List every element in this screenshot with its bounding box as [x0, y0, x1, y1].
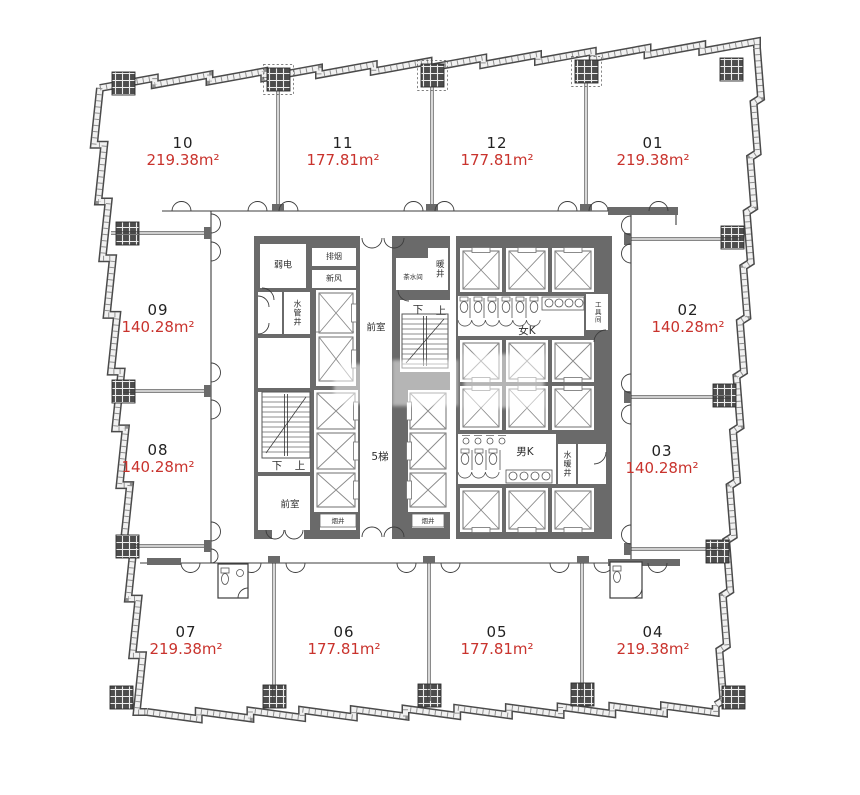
label-water-pipe-shaft: 水管井 — [293, 300, 301, 327]
column — [267, 68, 290, 91]
toilet-icon — [516, 302, 524, 313]
label-womens-wc: 女K — [518, 326, 535, 337]
sink-icon — [509, 472, 517, 480]
unit-area: 219.38m² — [146, 152, 219, 169]
sink-icon — [237, 570, 244, 577]
unit-area: 177.81m² — [460, 152, 533, 169]
column — [571, 683, 594, 706]
sink-icon — [545, 299, 553, 307]
unit-number: 09 — [121, 302, 194, 319]
toilet-icon — [502, 302, 510, 313]
unit-area: 219.38m² — [616, 641, 689, 658]
sink-icon — [575, 299, 583, 307]
unit-area: 177.81m² — [306, 152, 379, 169]
sink-icon — [542, 472, 550, 480]
toilet-icon — [488, 302, 496, 313]
unit-number: 12 — [460, 135, 533, 152]
column — [110, 686, 133, 709]
column — [112, 72, 135, 95]
floor-plan: 10 219.38m² 11 177.81m² 12 177.81m² 01 2… — [0, 0, 860, 795]
toilet-icon — [461, 454, 469, 465]
sink-icon — [565, 299, 573, 307]
unit-label-10[interactable]: 10 219.38m² — [146, 135, 219, 168]
column — [418, 684, 441, 707]
floor-plan-drawing — [0, 0, 860, 795]
label-tool-room: 工具间 — [594, 301, 601, 324]
unit-label-02[interactable]: 02 140.28m² — [651, 302, 724, 335]
toilet-icon — [475, 454, 483, 465]
label-anteroom-lower: 前室 — [280, 500, 299, 510]
label-heating-shaft: 暖井 — [435, 260, 444, 279]
unit-number: 08 — [121, 442, 194, 459]
label-up-lower: 上 — [295, 461, 306, 472]
unit-label-07[interactable]: 07 219.38m² — [149, 624, 222, 657]
unit-area: 140.28m² — [121, 319, 194, 336]
label-down-upper: 下 — [413, 305, 424, 316]
toilet-icon — [221, 568, 229, 573]
unit-number: 11 — [306, 135, 379, 152]
unit-number: 04 — [616, 624, 689, 641]
column — [421, 64, 444, 87]
unit-area: 140.28m² — [625, 460, 698, 477]
column — [706, 540, 729, 563]
column — [116, 535, 139, 558]
label-mens-wc: 男K — [516, 447, 533, 458]
unit-area: 177.81m² — [307, 641, 380, 658]
toilet-icon — [489, 454, 497, 465]
unit-number: 03 — [625, 443, 698, 460]
unit-number: 02 — [651, 302, 724, 319]
label-tea-room: 茶水间 — [403, 274, 423, 281]
label-weak-current: 弱电 — [274, 262, 292, 271]
unit-label-11[interactable]: 11 177.81m² — [306, 135, 379, 168]
sink-icon — [531, 472, 539, 480]
label-fresh-air: 新风 — [326, 275, 342, 283]
column — [263, 685, 286, 708]
sink-icon — [520, 472, 528, 480]
label-water-heating-shaft: 水暖井 — [563, 451, 571, 478]
label-up-upper: 上 — [436, 306, 447, 317]
label-anteroom-upper: 前室 — [366, 323, 385, 333]
unit-area: 140.28m² — [121, 459, 194, 476]
column — [575, 60, 598, 83]
toilet-icon — [613, 566, 621, 571]
urinal-icon — [463, 438, 469, 444]
toilet-icon — [474, 302, 482, 313]
label-smoke-exhaust: 排烟 — [326, 253, 342, 261]
unit-label-05[interactable]: 05 177.81m² — [460, 624, 533, 657]
column — [722, 686, 745, 709]
toilet-icon — [530, 302, 538, 313]
unit-label-01[interactable]: 01 219.38m² — [616, 135, 689, 168]
column — [720, 58, 743, 81]
label-smoke-shaft-left: 烟井 — [332, 518, 345, 525]
toilet-icon — [614, 572, 621, 583]
unit-number: 07 — [149, 624, 222, 641]
urinal-icon — [487, 438, 493, 444]
unit-area: 219.38m² — [149, 641, 222, 658]
unit-label-03[interactable]: 03 140.28m² — [625, 443, 698, 476]
unit-area: 177.81m² — [460, 641, 533, 658]
unit-label-09[interactable]: 09 140.28m² — [121, 302, 194, 335]
unit-area: 140.28m² — [651, 319, 724, 336]
toilet-icon — [460, 302, 468, 313]
urinal-icon — [499, 438, 505, 444]
unit-number: 06 — [307, 624, 380, 641]
unit-label-04[interactable]: 04 219.38m² — [616, 624, 689, 657]
column — [112, 380, 135, 403]
label-smoke-shaft-mid: 烟井 — [422, 518, 435, 525]
toilet-icon — [222, 574, 229, 585]
sink-icon — [555, 299, 563, 307]
unit-number: 10 — [146, 135, 219, 152]
unit-area: 219.38m² — [616, 152, 689, 169]
label-down-lower: 下 — [272, 461, 283, 472]
unit-label-06[interactable]: 06 177.81m² — [307, 624, 380, 657]
label-elevator-lobby: 5梯 — [371, 452, 388, 463]
unit-number: 01 — [616, 135, 689, 152]
unit-label-08[interactable]: 08 140.28m² — [121, 442, 194, 475]
unit-number: 05 — [460, 624, 533, 641]
urinal-icon — [475, 438, 481, 444]
column — [116, 222, 139, 245]
unit-label-12[interactable]: 12 177.81m² — [460, 135, 533, 168]
